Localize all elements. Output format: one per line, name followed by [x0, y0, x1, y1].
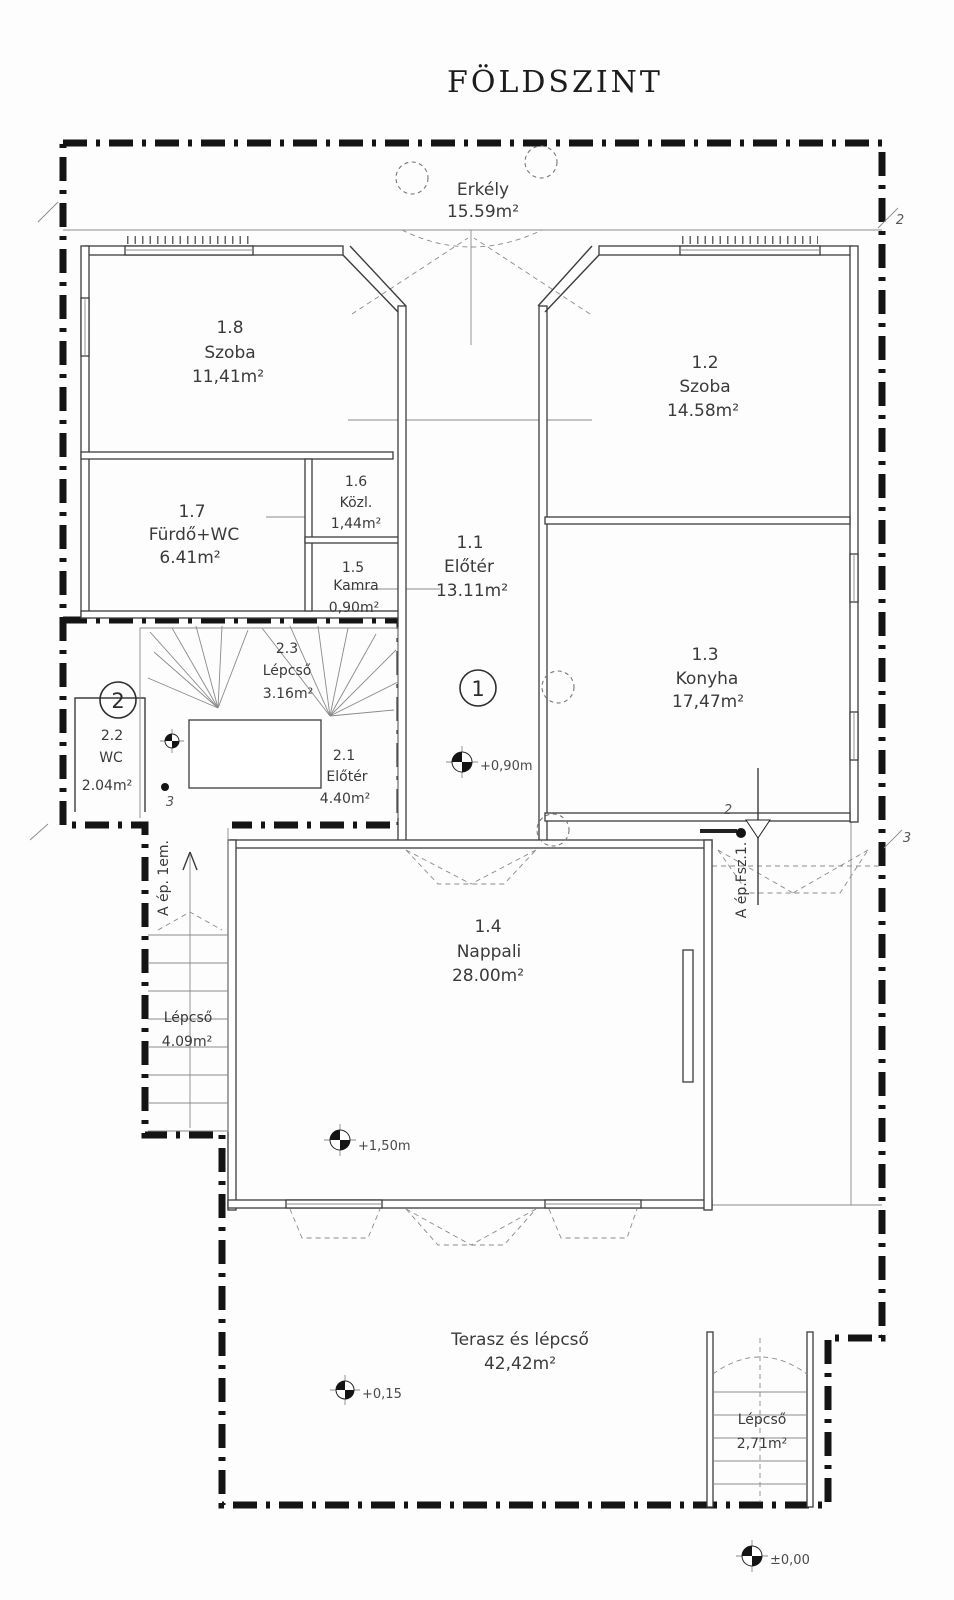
label-erkely-area: 15.59m²: [447, 202, 519, 222]
construction-lines: [30, 202, 902, 1205]
label-r16-number: 1.6: [345, 474, 367, 490]
label-r18-number: 1.8: [216, 318, 243, 338]
drawing-title: FÖLDSZINT: [447, 64, 663, 100]
label-r22-name: WC: [99, 750, 123, 766]
label-r12-area: 14.58m²: [667, 401, 739, 421]
label-terasz-area: 42,42m²: [484, 1354, 556, 1374]
level-text-datum: ±0,00: [770, 1553, 810, 1568]
axis-top-right: 2: [896, 213, 904, 228]
label-r11-number: 1.1: [456, 533, 483, 553]
label-r23-number: 2.3: [276, 641, 298, 657]
label-r13-name: Konyha: [676, 669, 739, 689]
label-r14-number: 1.4: [474, 917, 501, 937]
label-r17-area: 6.41m²: [159, 548, 220, 568]
label-r13-area: 17,47m²: [672, 692, 744, 712]
level-markers: [160, 729, 768, 1572]
level-text-hall: +0,90m: [480, 759, 533, 774]
label-r21-area: 4.40m²: [320, 791, 370, 807]
label-erkely-name: Erkély: [457, 180, 509, 200]
label-r18-area: 11,41m²: [192, 367, 264, 387]
label-r21-number: 2.1: [333, 748, 355, 764]
label-r11-name: Előtér: [444, 557, 494, 577]
label-tower-name: Lépcső: [164, 1010, 213, 1026]
label-br-name: Lépcső: [738, 1412, 787, 1428]
label-r14-name: Nappali: [457, 942, 522, 962]
level-marker-terasz: [330, 1375, 360, 1405]
vertical-annotations: A ép. 1em. A ép.Fsz.1.: [156, 840, 750, 918]
axis-circle-2: 2: [111, 689, 124, 713]
floor-plan-page: FÖLDSZINT: [0, 0, 954, 1600]
winder-stair: [140, 626, 398, 818]
label-r17-name: Fürdő+WC: [149, 525, 239, 545]
label-r13-number: 1.3: [691, 645, 718, 665]
label-br-area: 2,71m²: [737, 1436, 787, 1452]
label-r15-number: 1.5: [342, 560, 364, 576]
level-marker-nappali: [324, 1124, 356, 1156]
label-r17-number: 1.7: [178, 502, 205, 522]
axis-right-mid: 3: [903, 831, 911, 846]
annotation-section: A ép.Fsz.1.: [734, 842, 750, 918]
label-r23-name: Lépcső: [263, 663, 312, 679]
label-terasz-name: Terasz és lépcső: [450, 1330, 589, 1350]
level-marker-datum: [736, 1540, 768, 1572]
label-r21-name: Előtér: [326, 769, 367, 785]
label-r18-name: Szoba: [204, 343, 255, 363]
level-text-nappali: +1,50m: [358, 1139, 411, 1154]
label-r22-area: 2.04m²: [82, 778, 132, 794]
label-tower-area: 4.09m²: [162, 1034, 212, 1050]
label-r23-area: 3.16m²: [263, 686, 313, 702]
label-r12-name: Szoba: [679, 377, 730, 397]
label-r22-number: 2.2: [101, 728, 123, 744]
label-r16-name: Közl.: [340, 495, 373, 511]
label-r12-number: 1.2: [691, 353, 718, 373]
label-r14-area: 28.00m²: [452, 966, 524, 986]
step-marks: [290, 850, 868, 1245]
annotation-stair-up: A ép. 1em.: [156, 840, 172, 916]
label-r16-area: 1,44m²: [331, 516, 381, 532]
level-text-terasz: +0,15: [362, 1387, 402, 1402]
label-r11-area: 13.11m²: [436, 581, 508, 601]
level-marker-hall: [446, 746, 478, 778]
level-marker-stair: [160, 729, 184, 753]
axis-circle-1: 1: [471, 677, 484, 701]
label-r15-area: 0,90m²: [329, 600, 379, 616]
axis-section: 2: [724, 803, 732, 818]
floor-plan-drawing: FÖLDSZINT: [0, 0, 954, 1600]
label-r15-name: Kamra: [333, 578, 379, 594]
axis-stair-point: 3: [166, 795, 174, 810]
